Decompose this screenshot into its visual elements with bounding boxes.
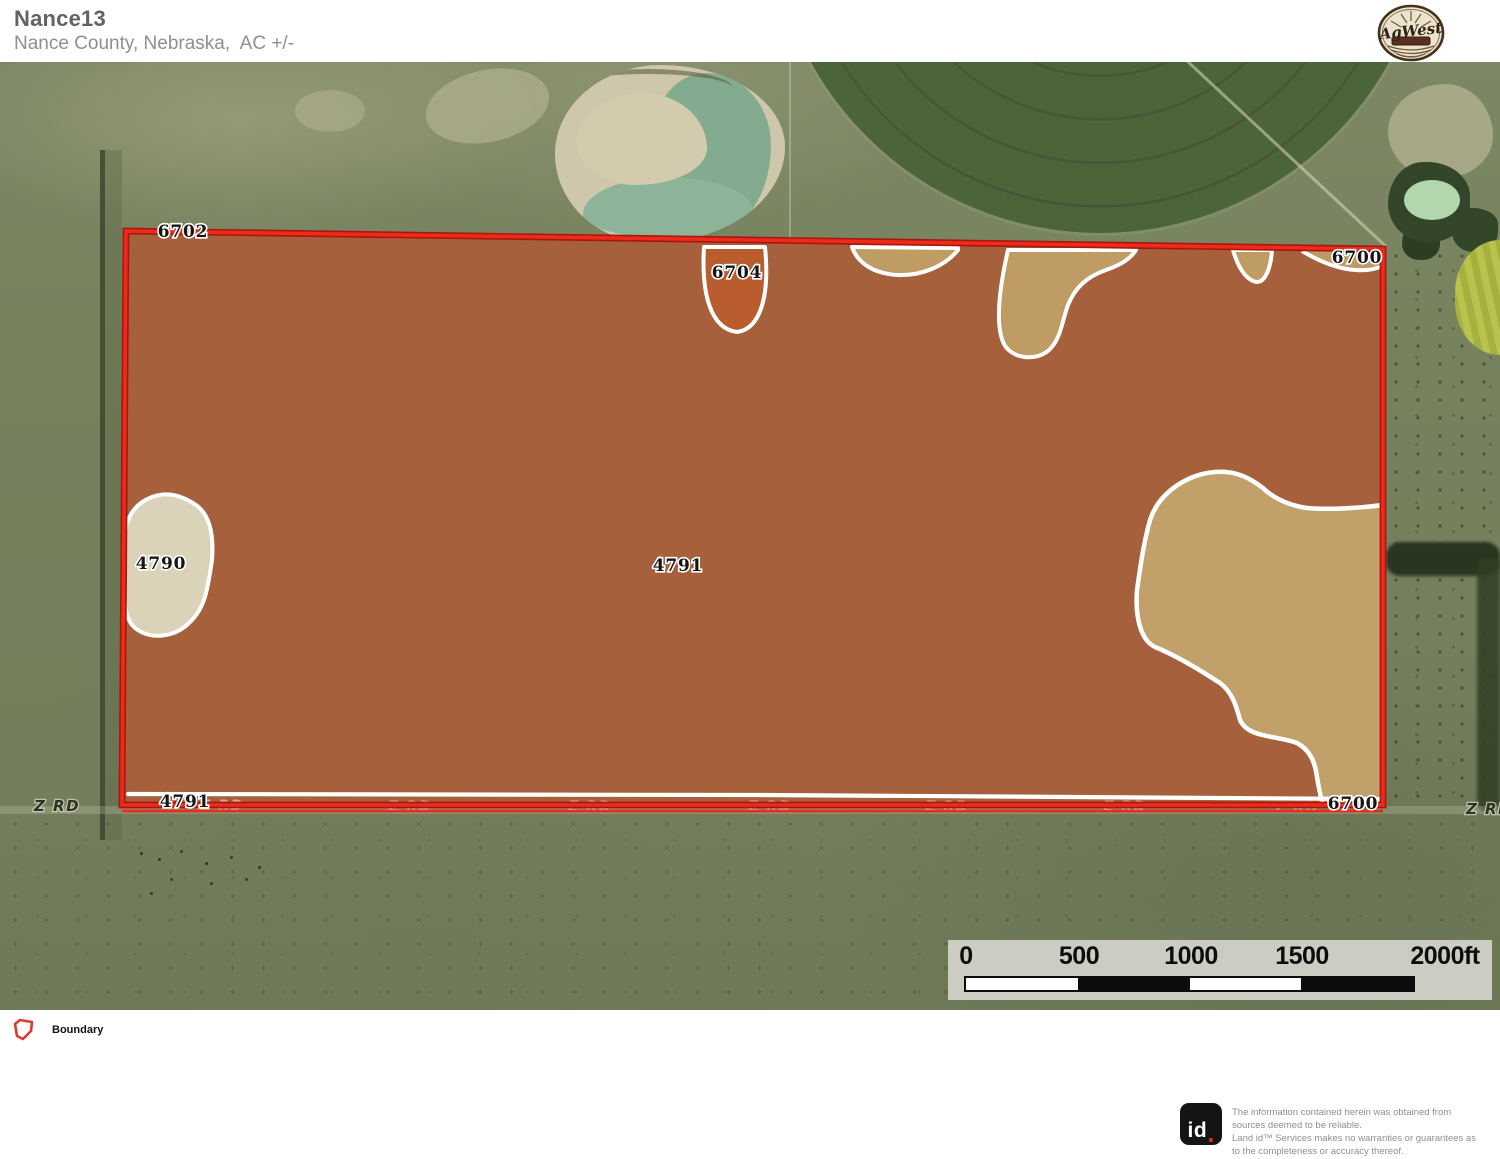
boundary-legend-icon [10, 1016, 38, 1044]
boundary-legend-label: Boundary [52, 1024, 103, 1036]
soil-label: 6704 [712, 263, 763, 283]
scale-bar: 0 500 1000 1500 2000ft [948, 940, 1492, 1000]
landid-logo: id. [1180, 1103, 1222, 1145]
landid-logo-text: id [1188, 1124, 1208, 1138]
scale-tick: 2000ft [1410, 942, 1479, 971]
disclaimer-text: The information contained herein was obt… [1232, 1106, 1482, 1158]
soil-label: 6700 [1332, 248, 1383, 268]
soil-label: 4791 [160, 792, 211, 812]
page: Nance13 Nance County, Nebraska, AC +/- A… [0, 0, 1500, 1159]
scale-tick: 1500 [1275, 942, 1329, 971]
landid-logo-dot: . [1207, 1128, 1214, 1138]
soil-label: 4791 [653, 556, 704, 576]
map-canvas[interactable]: Z RD Z RD Z RD Z RD Z RD Z RD Z RD Z RD … [0, 62, 1500, 1010]
scale-tick: 1000 [1164, 942, 1218, 971]
road-label-z-rd: Z RD [33, 797, 80, 815]
map-subtitle: Nance County, Nebraska, AC +/- [14, 33, 294, 55]
legend: Boundary [10, 1014, 103, 1046]
scale-bar-segments [964, 976, 1415, 992]
header: Nance13 Nance County, Nebraska, AC +/- A… [0, 0, 1500, 62]
soil-label: 4790 [136, 554, 187, 574]
soil-label: 6700 [1328, 794, 1379, 814]
soil-label: 6702 [158, 222, 209, 242]
soil-overlay: Z RD Z RD Z RD Z RD Z RD Z RD Z RD Z RD … [0, 62, 1500, 1010]
agwest-logo: AgWest [1376, 3, 1446, 63]
scale-tick: 0 [959, 942, 972, 971]
map-title: Nance13 [14, 6, 106, 32]
road-label-z-rd: Z RD [1465, 800, 1500, 818]
scale-tick: 500 [1059, 942, 1099, 971]
